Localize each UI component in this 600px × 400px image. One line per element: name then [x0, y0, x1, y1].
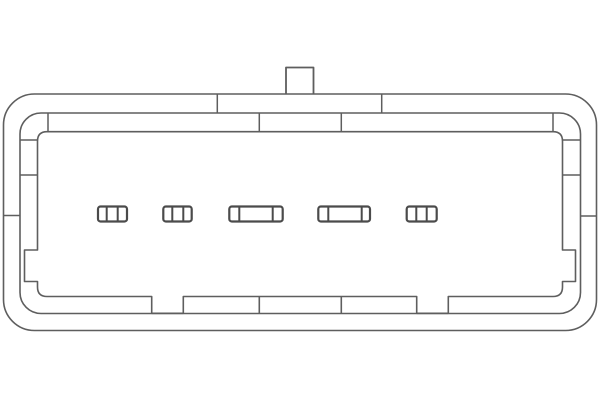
diagram-canvas	[0, 0, 600, 400]
mounting-tab	[286, 68, 314, 95]
pin-slot-3	[229, 207, 282, 222]
pin-slot-5	[407, 207, 437, 222]
connector-front-view-diagram	[0, 0, 600, 400]
pin-slot-2	[163, 207, 191, 222]
pin-slot-1	[98, 207, 127, 222]
